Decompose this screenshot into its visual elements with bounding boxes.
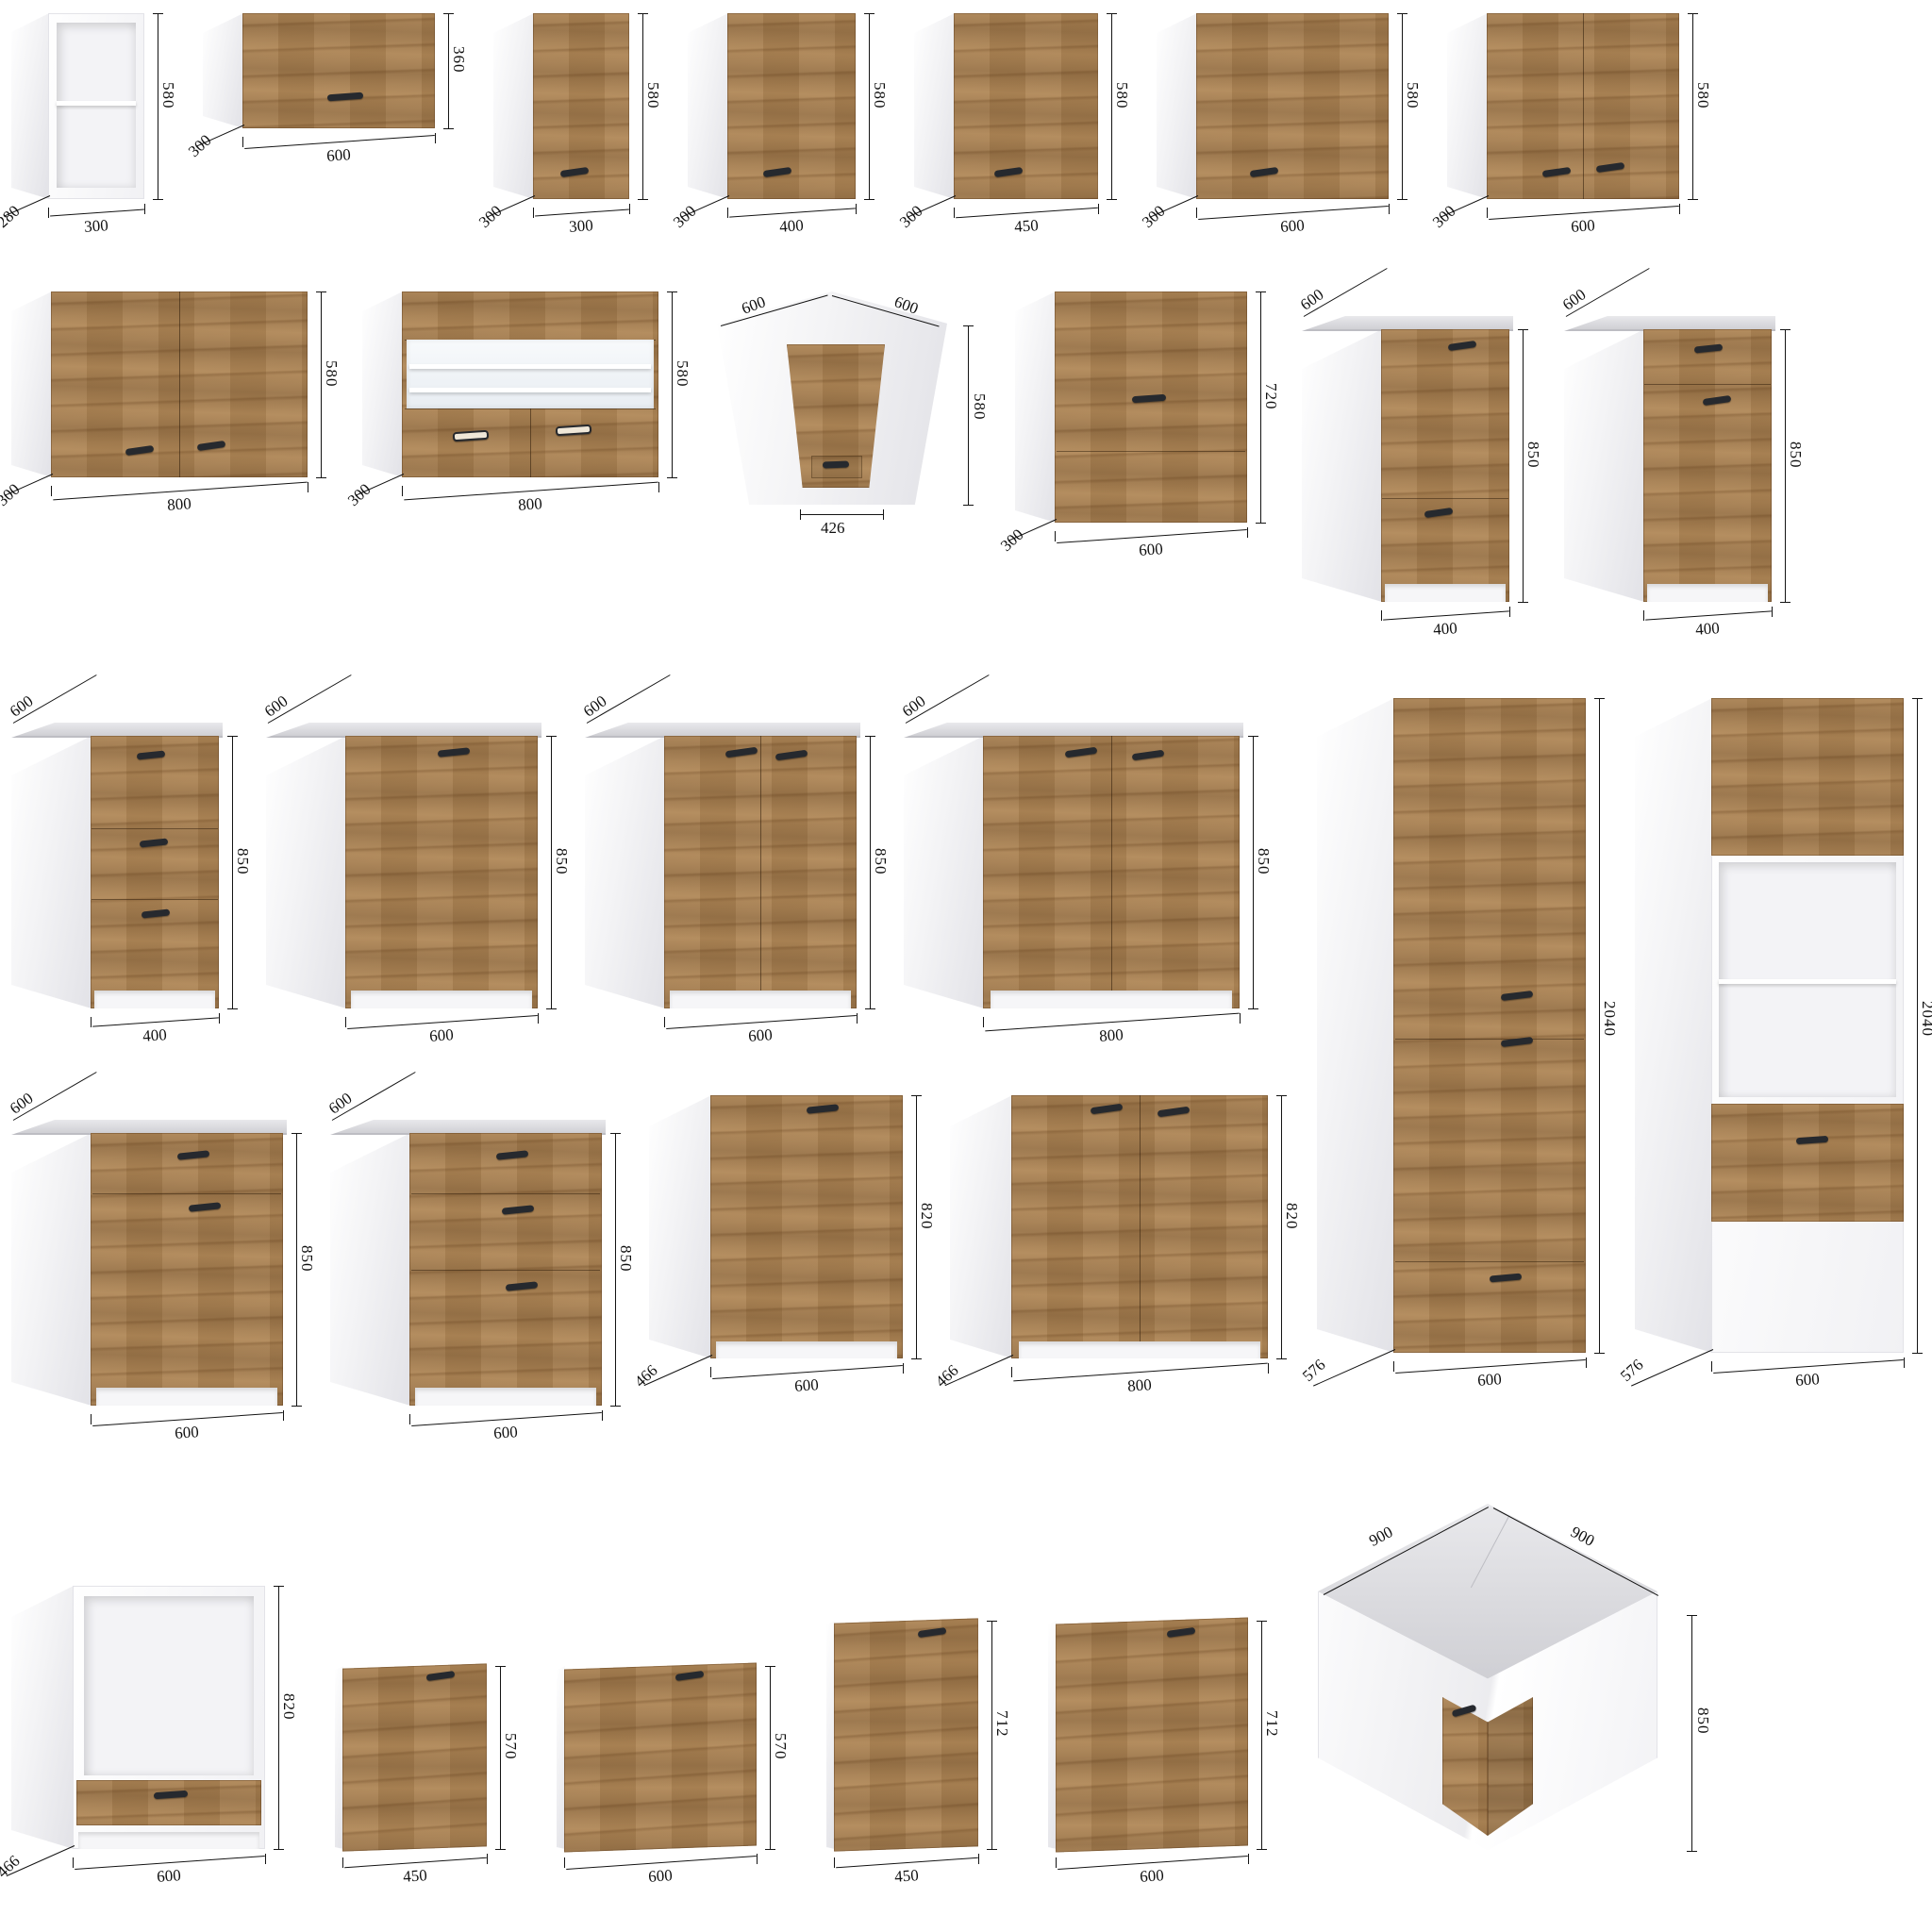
- dimension-line: [991, 1621, 992, 1849]
- cabinet-size-chart: 5803002803606003005803003005804003005804…: [0, 0, 1932, 1932]
- cabinet-side-face: [11, 291, 52, 477]
- dimension-line: [1276, 1095, 1287, 1096]
- dimension-label: 450: [883, 1866, 929, 1885]
- dimension-line: [638, 199, 648, 200]
- dimension-label: 800: [1116, 1375, 1162, 1394]
- dimension-line: [629, 204, 630, 214]
- cabinet-front: [345, 736, 538, 1008]
- dimension-label: 580: [972, 393, 988, 421]
- handle-icon: [1167, 1627, 1196, 1638]
- handle-icon: [725, 747, 758, 758]
- drawer-split-line: [1395, 1261, 1584, 1262]
- handle-icon: [1131, 394, 1165, 403]
- dimension-line: [1256, 523, 1266, 524]
- dimension-label: 800: [1088, 1025, 1134, 1044]
- handle-icon: [1424, 508, 1454, 518]
- drawer-split-line: [1644, 384, 1770, 385]
- dimension-line: [1261, 1621, 1262, 1849]
- handle-icon: [1065, 747, 1098, 758]
- cabinet-front-panel-600x712: 712600: [1048, 1621, 1288, 1898]
- cabinet-front: [1056, 1617, 1248, 1852]
- shelf: [57, 101, 136, 106]
- dimension-label: 600: [1269, 216, 1315, 235]
- cabinet-front: [533, 13, 629, 199]
- dimension-line: [1586, 1357, 1587, 1368]
- dimension-label: 300: [186, 132, 214, 160]
- dimension-label: 820: [919, 1203, 935, 1230]
- dimension-line: [219, 1013, 220, 1024]
- dimension-line: [1240, 1013, 1241, 1024]
- dimension-line: [321, 291, 322, 477]
- cabinet-front: [983, 736, 1240, 1008]
- handle-icon: [139, 838, 168, 847]
- dimension-label: 450: [391, 1866, 438, 1885]
- dimension-line: [1780, 329, 1790, 330]
- dimension-line: [443, 13, 454, 14]
- dimension-label: 600: [1297, 286, 1326, 313]
- cabinet-wall-single-door-600x300x580: 580600300: [1157, 13, 1428, 248]
- cabinet-front: [710, 1095, 903, 1358]
- dimension-line: [870, 736, 871, 1008]
- drawer-split-line: [1057, 451, 1245, 452]
- cabinet-base-drawer-door-400x600x850: 600850400: [1564, 291, 1811, 651]
- cabinet-front: [564, 1662, 757, 1852]
- dimension-line: [1599, 698, 1600, 1353]
- dimension-line: [487, 1854, 488, 1864]
- cabinet-side-face: [362, 291, 403, 477]
- dimension-label: 600: [418, 1025, 464, 1044]
- handle-icon: [807, 1104, 840, 1114]
- dimension-line: [1679, 204, 1680, 214]
- cabinet-wall-double-flip-600x300x720: 720600300: [1015, 291, 1287, 572]
- handle-icon: [506, 1281, 539, 1291]
- cabinet-side-face: [914, 13, 955, 199]
- dimension-label: 850: [1525, 441, 1541, 469]
- dimension-label: 570: [503, 1733, 519, 1760]
- handle-icon: [1490, 1273, 1522, 1282]
- dimension-line: [1107, 13, 1117, 14]
- cabinet-base-double-door-800x466x820: 820800466: [950, 1095, 1307, 1407]
- cabinet-tall-oven-housing-600x576x2040: 2040600576: [1635, 698, 1932, 1402]
- dimension-line: [48, 208, 49, 218]
- dimension-line: [615, 1133, 616, 1406]
- cabinet-front: [1381, 329, 1509, 602]
- dimension-line: [232, 736, 233, 1008]
- cabinet-front-panel-600x570: 570600: [557, 1666, 796, 1898]
- row-panels-and-corner: 8206004665704505706007124507126009009008…: [11, 1504, 1924, 1898]
- dimension-line: [1487, 208, 1488, 218]
- door-split-line: [1111, 736, 1112, 1008]
- dimension-label: 600: [7, 1090, 36, 1117]
- plinth: [96, 1388, 277, 1406]
- dimension-line: [1098, 204, 1099, 214]
- handle-icon: [177, 1150, 210, 1160]
- drawer-split-line: [92, 899, 217, 900]
- cabinet-base-three-drawer-600x600x850: 600850600: [330, 1095, 641, 1455]
- dimension-line: [296, 1133, 297, 1406]
- dimension-label: 850: [299, 1245, 315, 1273]
- row-base-cabinets-2: 600850600600850600820600466820800466: [11, 1095, 1307, 1455]
- dimension-label: 300: [345, 481, 374, 509]
- dimension-label: 426: [821, 520, 845, 536]
- dimension-line: [1402, 13, 1403, 199]
- dimension-label: 400: [131, 1025, 177, 1044]
- drawer-split-line: [92, 1193, 281, 1194]
- mid-section: 600850400600850600600850600600850800 600…: [11, 698, 1924, 1455]
- dimension-label: 600: [783, 1375, 829, 1394]
- dimension-line: [1785, 329, 1786, 602]
- cabinet-wall-double-door-800x300x580: 580800300: [11, 291, 347, 526]
- drawer-split-line: [411, 1270, 600, 1271]
- dimension-line: [1257, 1849, 1267, 1850]
- dimension-label: 850: [1256, 848, 1272, 875]
- dimension-line: [435, 133, 436, 143]
- dimension-line: [1011, 1367, 1012, 1377]
- dimension-line: [610, 1133, 621, 1134]
- cabinet-base-three-drawer-400x600x850: 600850400: [11, 698, 258, 1058]
- dimension-line: [342, 1857, 343, 1868]
- cabinet-side-face: [11, 13, 49, 199]
- dimension-line: [916, 1095, 917, 1358]
- handle-icon: [1702, 395, 1731, 406]
- dimension-label: 850: [1695, 1707, 1711, 1735]
- dimension-line: [551, 736, 552, 1008]
- cabinet-wall-double-door-600x300x580: 580600300: [1447, 13, 1719, 248]
- dimension-line: [448, 13, 449, 128]
- dimension-label: 900: [1569, 1524, 1597, 1549]
- cabinet-front: [1643, 329, 1772, 602]
- dimension-line: [1687, 1851, 1697, 1852]
- cabinet-front: [402, 291, 658, 477]
- dimension-line: [1248, 1854, 1249, 1864]
- dimension-label: 720: [1263, 383, 1279, 410]
- handle-icon: [137, 751, 166, 760]
- dimension-label: 400: [768, 216, 814, 235]
- plinth: [78, 1832, 259, 1849]
- dimension-line: [1772, 607, 1773, 617]
- dimension-line: [283, 1410, 284, 1421]
- dimension-line: [1257, 1621, 1267, 1622]
- cabinet-side-face: [1564, 329, 1644, 602]
- dimension-line: [316, 291, 326, 292]
- dimension-label: 580: [1695, 82, 1711, 109]
- dimension-line: [800, 514, 883, 515]
- dimension-line: [757, 1854, 758, 1864]
- dimension-label: 600: [1128, 1866, 1174, 1885]
- plinth: [1019, 1341, 1260, 1358]
- dimension-label: 600: [325, 1090, 355, 1117]
- cabinet-base-door-drawer-400x600x850: 600850400: [1302, 291, 1549, 651]
- dimension-line: [667, 291, 677, 292]
- cabinet-front: [51, 291, 308, 477]
- handle-icon: [1158, 1107, 1191, 1118]
- dimension-label: 400: [1684, 619, 1730, 638]
- dimension-line: [546, 1008, 557, 1009]
- cabinet-side-face: [1157, 13, 1197, 199]
- dimension-label: 600: [1559, 216, 1606, 235]
- dimension-line: [291, 1133, 302, 1134]
- dimension-label: 300: [558, 216, 604, 235]
- dimension-label: 600: [580, 692, 609, 720]
- cabinet-side-face: [585, 736, 665, 1008]
- row-wall-cabinets: 5803002803606003005803003005804003005804…: [11, 13, 1924, 248]
- plinth: [415, 1388, 596, 1406]
- plinth: [716, 1341, 897, 1358]
- cabinet-side-face: [266, 736, 346, 1008]
- dimension-label: 850: [873, 848, 889, 875]
- dimension-label: 600: [7, 692, 36, 720]
- dimension-line: [1509, 607, 1510, 617]
- dimension-label: 580: [1114, 82, 1130, 109]
- dimension-line: [91, 1414, 92, 1424]
- dimension-label: 580: [1405, 82, 1421, 109]
- dimension-line: [610, 1406, 621, 1407]
- handle-icon: [327, 92, 363, 102]
- cabinet-front: [664, 736, 857, 1008]
- dimension-label: 300: [476, 203, 505, 231]
- cabinet-wall-open-shelf-300x280x580: 580300280: [11, 13, 184, 248]
- wood-door-face: [76, 1780, 261, 1824]
- handle-icon: [1542, 167, 1572, 177]
- cabinet-wall-glass-display-800x300x580: 580800300: [362, 291, 698, 526]
- dimension-line: [865, 1008, 875, 1009]
- dimension-line: [274, 1586, 284, 1587]
- dimension-line: [1393, 1361, 1394, 1372]
- dimension-label: 300: [671, 203, 699, 231]
- cabinet-front: [73, 1586, 265, 1849]
- dimension-line: [402, 486, 403, 496]
- dimension-line: [1643, 610, 1644, 621]
- dimension-label: 820: [1284, 1203, 1300, 1230]
- plinth: [1647, 584, 1768, 602]
- dimension-line: [500, 1666, 501, 1849]
- dimension-label: 580: [160, 82, 176, 109]
- handle-icon: [1694, 344, 1724, 354]
- dimension-line: [265, 1854, 266, 1864]
- open-niche: [84, 1596, 254, 1775]
- dimension-line: [1780, 602, 1790, 603]
- dimension-label: 712: [994, 1710, 1010, 1738]
- dimension-label: 712: [1264, 1710, 1280, 1738]
- handle-icon: [763, 167, 792, 177]
- dimension-label: 360: [451, 46, 467, 74]
- dimension-line: [1056, 1857, 1057, 1868]
- handle-icon: [775, 750, 808, 761]
- dimension-line: [73, 1857, 74, 1868]
- cabinet-base-corner-900x900x850: 900900850: [1318, 1504, 1729, 1898]
- door-split-line: [760, 736, 761, 1008]
- cabinet-wall-single-door-400x300x580: 580400300: [688, 13, 895, 248]
- dimension-line: [1253, 736, 1254, 1008]
- door-split-line: [179, 291, 180, 477]
- cabinet-side-face: [203, 13, 243, 128]
- plinth: [351, 991, 532, 1008]
- dimension-line: [1904, 1357, 1905, 1368]
- dimension-label: 850: [618, 1245, 634, 1273]
- dimension-line: [1518, 602, 1528, 603]
- dimension-label: 800: [507, 494, 553, 513]
- shelf: [409, 388, 651, 392]
- cabinet-base-single-door-600x466x820: 820600466: [649, 1095, 942, 1407]
- dimension-label: 2040: [1602, 1001, 1618, 1037]
- drawer-split-line: [1395, 1039, 1584, 1040]
- dimension-line: [91, 1017, 92, 1027]
- dimension-label: 450: [1003, 216, 1049, 235]
- dimension-line: [968, 325, 969, 505]
- dimension-line: [667, 477, 677, 478]
- cabinet-front: [954, 13, 1098, 199]
- dimension-line: [533, 208, 534, 218]
- plinth: [94, 991, 215, 1008]
- cabinet-front: [91, 1133, 283, 1406]
- dimension-line: [144, 204, 145, 214]
- handle-icon: [1131, 750, 1164, 761]
- cabinet-base-drawer-door-600x600x850: 600850600: [11, 1095, 323, 1455]
- dimension-line: [1688, 13, 1698, 14]
- handle-icon: [189, 1202, 222, 1212]
- cabinet-side-face: [11, 1586, 74, 1849]
- cabinet-base-single-door-600x600x850: 600850600: [266, 698, 577, 1058]
- dimension-line: [443, 128, 454, 129]
- dimension-label: 600: [482, 1423, 528, 1441]
- row-base-cabinets-1: 600850400600850600600850600600850800: [11, 698, 1307, 1058]
- handle-icon: [917, 1627, 946, 1638]
- dimension-line: [963, 325, 974, 326]
- cabinet-side-face: [11, 1133, 92, 1406]
- cabinet-front: [1711, 698, 1904, 1353]
- dimension-line: [535, 209, 629, 217]
- handle-icon: [197, 441, 226, 451]
- cabinet-wall-flip-door-600x300x360: 360600300: [203, 13, 475, 177]
- dimension-line: [1692, 13, 1693, 199]
- handle-icon: [1501, 991, 1534, 1001]
- dimension-line: [1260, 291, 1261, 523]
- dimension-label: 600: [1559, 286, 1589, 313]
- dimension-line: [50, 209, 144, 217]
- dimension-label: 600: [899, 692, 928, 720]
- handle-icon: [559, 167, 589, 177]
- handle-icon: [556, 425, 592, 437]
- handle-icon: [496, 1150, 529, 1160]
- dimension-label: 800: [156, 494, 202, 513]
- dimension-label: 300: [0, 481, 23, 509]
- cabinet-wall-single-door-300x300x580: 580300300: [493, 13, 669, 248]
- dimension-line: [564, 1857, 565, 1868]
- dimension-line: [987, 1849, 997, 1850]
- dimension-line: [869, 13, 870, 199]
- cabinet-front: [48, 13, 144, 199]
- dimension-line: [1594, 1353, 1605, 1354]
- handle-icon: [142, 908, 171, 918]
- dimension-line: [1523, 329, 1524, 602]
- dimension-line: [1196, 208, 1197, 218]
- dimension-line: [911, 1095, 922, 1096]
- dimension-label: 2040: [1920, 1001, 1932, 1037]
- dimension-label: 300: [998, 526, 1026, 555]
- dimension-label: 600: [145, 1866, 192, 1885]
- dimension-line: [963, 505, 974, 506]
- cabinet-front: [1011, 1095, 1268, 1358]
- dimension-line: [911, 1358, 922, 1359]
- dimension-line: [1281, 1095, 1282, 1358]
- dimension-line: [864, 199, 874, 200]
- dimension-line: [153, 199, 163, 200]
- dimension-line: [864, 13, 874, 14]
- cabinet-side-face: [1015, 291, 1056, 523]
- dimension-line: [538, 1013, 539, 1024]
- cabinet-front: [242, 13, 435, 128]
- dimension-line: [1055, 531, 1056, 541]
- dimension-line: [856, 204, 857, 214]
- cabinet-side-face: [950, 1095, 1012, 1358]
- dimension-line: [727, 208, 728, 218]
- cabinet-side-face: [1447, 13, 1488, 199]
- dimension-line: [1518, 329, 1528, 330]
- dimension-line: [153, 13, 163, 14]
- cabinet-side-face: [493, 13, 534, 199]
- dimension-line: [1912, 698, 1923, 699]
- dimension-line: [1711, 1361, 1712, 1372]
- cabinet-wall-corner-600x600x580-front-426: 600600580426: [713, 291, 1000, 542]
- dimension-label: 600: [637, 1866, 683, 1885]
- dimension-label: 580: [872, 82, 888, 109]
- dimension-line: [278, 1586, 279, 1849]
- cabinet-oven-housing-base-600x466x820: 820600466: [11, 1586, 305, 1898]
- handle-icon: [1596, 162, 1625, 173]
- dimension-line: [316, 477, 326, 478]
- dimension-label: 580: [675, 360, 691, 388]
- dimension-label: 600: [1127, 540, 1174, 558]
- handle-icon: [125, 445, 155, 456]
- dimension-line: [495, 1666, 506, 1667]
- cabinet-front: [1196, 13, 1389, 199]
- cabinet-front-panel-450x570: 570450: [335, 1666, 526, 1898]
- dimension-line: [602, 1410, 603, 1421]
- dimension-line: [834, 1857, 835, 1868]
- cabinet-front-panel-450x712: 712450: [826, 1621, 1018, 1898]
- dimension-line: [638, 13, 648, 14]
- handle-icon: [438, 748, 471, 758]
- dimension-line: [664, 1017, 665, 1027]
- cabinet-side-face: [649, 1095, 711, 1358]
- handle-icon: [675, 1671, 705, 1681]
- handle-icon: [453, 429, 490, 441]
- dimension-line: [1691, 1615, 1692, 1851]
- dimension-line: [865, 736, 875, 737]
- cabinet-front: [409, 1133, 602, 1406]
- handle-icon: [1447, 341, 1476, 351]
- dimension-line: [345, 1017, 346, 1027]
- dimension-label: 600: [315, 145, 361, 164]
- plinth: [1385, 584, 1506, 602]
- cabinet-side-face: [1635, 698, 1712, 1353]
- dimension-line: [1248, 736, 1258, 737]
- cabinet-side-face: [688, 13, 728, 199]
- handle-icon: [1250, 167, 1279, 177]
- dimension-line: [1912, 1353, 1923, 1354]
- drawer-split-line: [1382, 498, 1507, 499]
- dimension-label: 300: [1140, 203, 1168, 231]
- row-wall-and-narrow-base-cabinets: 5808003005808003006006005804267206003006…: [11, 291, 1924, 651]
- dimension-label: 280: [0, 203, 23, 231]
- dimension-label: 580: [645, 82, 661, 109]
- dimension-line: [1594, 698, 1605, 699]
- dimension-line: [857, 1013, 858, 1024]
- dimension-line: [954, 208, 955, 218]
- dimension-line: [1397, 199, 1407, 200]
- cabinet-side-face: [904, 736, 984, 1008]
- dimension-line: [227, 736, 238, 737]
